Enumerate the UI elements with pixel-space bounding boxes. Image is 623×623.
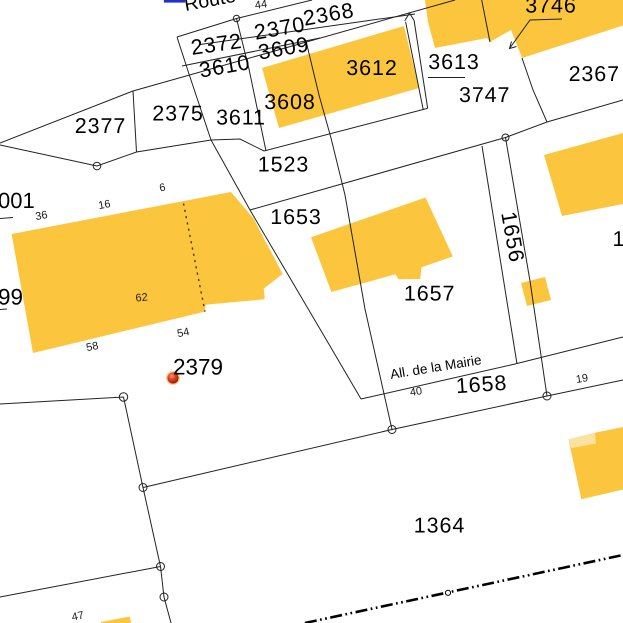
svg-text:1657: 1657 xyxy=(404,281,455,305)
svg-text:36: 36 xyxy=(34,209,48,223)
svg-text:99: 99 xyxy=(0,285,23,310)
svg-text:1364: 1364 xyxy=(414,514,465,538)
svg-text:3611: 3611 xyxy=(216,106,266,130)
svg-text:40: 40 xyxy=(409,385,423,399)
svg-text:2367: 2367 xyxy=(569,62,620,86)
svg-text:19: 19 xyxy=(575,372,589,386)
svg-text:1523: 1523 xyxy=(258,152,309,176)
svg-text:3747: 3747 xyxy=(459,83,510,107)
svg-text:001: 001 xyxy=(0,188,35,213)
svg-text:16: 16 xyxy=(97,198,111,212)
svg-text:54: 54 xyxy=(176,326,190,340)
svg-text:58: 58 xyxy=(85,340,99,354)
svg-text:3608: 3608 xyxy=(264,90,315,114)
svg-text:62: 62 xyxy=(135,291,148,304)
svg-text:3613: 3613 xyxy=(428,50,479,74)
svg-text:3612: 3612 xyxy=(346,56,397,80)
svg-text:1653: 1653 xyxy=(270,205,321,229)
svg-text:44: 44 xyxy=(254,0,268,12)
svg-text:16: 16 xyxy=(613,227,623,251)
svg-text:2377: 2377 xyxy=(75,114,126,138)
svg-text:2375: 2375 xyxy=(152,102,203,126)
svg-text:1658: 1658 xyxy=(455,371,508,399)
svg-text:2379: 2379 xyxy=(173,354,223,379)
svg-text:47: 47 xyxy=(71,609,85,623)
svg-text:3746: 3746 xyxy=(525,0,576,17)
